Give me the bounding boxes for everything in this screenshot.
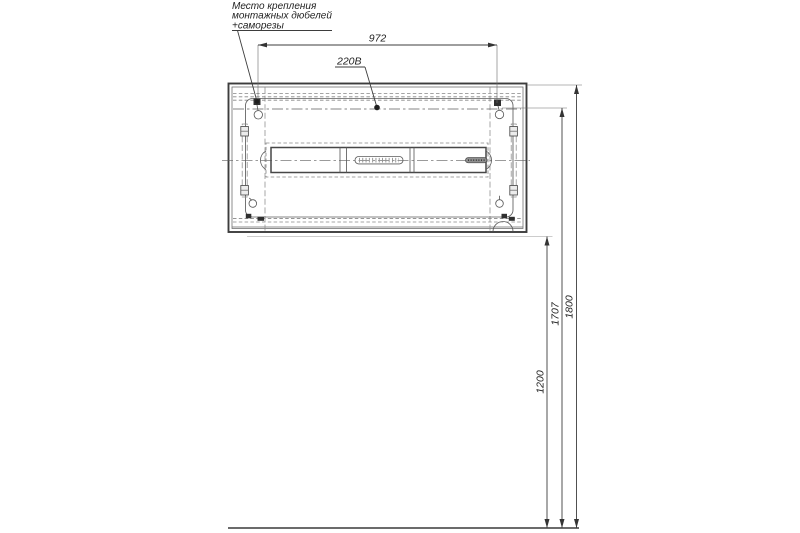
power-leader-dot [374,105,380,111]
power-label: 220В [336,56,362,68]
technical-drawing: 972 1800 1707 1200 Место крепления монта… [0,0,800,533]
note-leader-dot [255,99,259,103]
center-lines [222,109,530,160]
note-line-3: +саморезы [232,20,284,31]
cable-hole [493,222,513,232]
rail-fastener [466,158,488,163]
dim-total-height-label: 1800 [564,295,576,319]
note-annotation: Место крепления монтажных дюбелей +самор… [232,1,332,104]
dimension-width: 972 [258,33,497,104]
dim-holes-height-label: 1707 [550,301,562,326]
drawing-page: 972 1800 1707 1200 Место крепления монта… [0,0,800,533]
dimension-bottom-height: 1200 [247,237,553,529]
dim-bottom-height-label: 1200 [535,370,547,394]
dimension-holes-height: 1707 [502,108,567,528]
dim-width-label: 972 [369,33,387,45]
